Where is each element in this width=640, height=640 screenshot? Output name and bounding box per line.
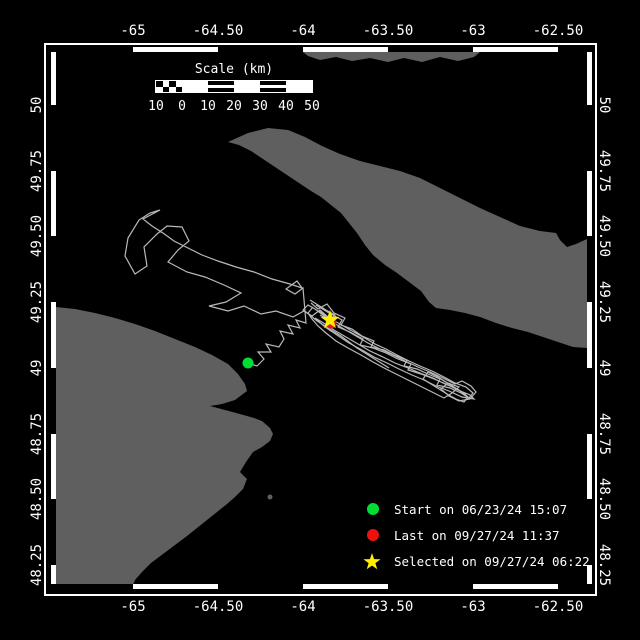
y-axis-tick-label-right: 48.50 [596, 478, 612, 520]
x-axis-tick-label-top: -63.50 [363, 23, 414, 39]
star-icon [358, 550, 384, 572]
land-north-shore [303, 52, 480, 62]
legend-marker-star [358, 550, 384, 572]
scale-bar-section [286, 81, 312, 92]
scale-bar-label: 30 [252, 99, 268, 114]
legend: Start on 06/23/24 15:07Last on 09/27/24 … [358, 496, 590, 574]
legend-label: Selected on 09/27/24 06:22 [384, 554, 590, 569]
x-axis-tick-label-bottom: -63.50 [363, 599, 414, 615]
y-axis-tick-label-left: 48.50 [29, 478, 45, 520]
x-axis-tick-label-top: -62.50 [533, 23, 584, 39]
y-axis-tick-label-left: 49.50 [29, 215, 45, 257]
y-axis-tick-label-right: 48.75 [596, 413, 612, 455]
legend-marker-circle [358, 524, 384, 546]
legend-label: Start on 06/23/24 15:07 [384, 502, 567, 517]
land-anticosti-island [228, 128, 587, 348]
y-axis-tick-label-right: 49 [596, 360, 612, 377]
legend-dot [367, 503, 379, 515]
y-axis-tick-label-left: 50 [29, 97, 45, 114]
x-axis-tick-label-top: -64.50 [193, 23, 244, 39]
x-axis-tick-label-bottom: -64 [290, 599, 315, 615]
scale-bar-section [234, 81, 260, 92]
start-marker[interactable] [243, 358, 254, 369]
y-axis-tick-label-right: 48.25 [596, 544, 612, 586]
y-axis-tick-label-right: 49.75 [596, 150, 612, 192]
legend-item: Last on 09/27/24 11:37 [358, 522, 590, 548]
scale-bar-label: 50 [304, 99, 320, 114]
x-axis-tick-label-bottom: -62.50 [533, 599, 584, 615]
scale-bar-section [260, 81, 286, 92]
tracking-map-view: -65-65-64.50-64.50-64-64-63.50-63.50-63-… [0, 0, 640, 640]
x-axis-tick-label-top: -63 [460, 23, 485, 39]
scale-bar-label: 10 [200, 99, 216, 114]
dot-icon [358, 524, 384, 546]
y-axis-tick-label-right: 50 [596, 97, 612, 114]
dot-icon [358, 498, 384, 520]
x-axis-tick-label-bottom: -65 [120, 599, 145, 615]
y-axis-tick-label-left: 49 [29, 360, 45, 377]
legend-item: Start on 06/23/24 15:07 [358, 496, 590, 522]
legend-label: Last on 09/27/24 11:37 [384, 528, 560, 543]
scale-bar-section [156, 81, 182, 92]
scale-bar-label: 40 [278, 99, 294, 114]
legend-marker-circle [358, 498, 384, 520]
scale-bar-section [182, 81, 208, 92]
scale-bar-label: 0 [178, 99, 186, 114]
y-axis-tick-label-left: 48.25 [29, 544, 45, 586]
x-axis-tick-label-top: -65 [120, 23, 145, 39]
legend-dot [367, 529, 379, 541]
legend-star [363, 553, 380, 569]
y-axis-tick-label-right: 49.50 [596, 215, 612, 257]
y-axis-tick-label-right: 49.25 [596, 281, 612, 323]
land-gaspe-peninsula [56, 307, 273, 587]
x-axis-tick-label-bottom: -63 [460, 599, 485, 615]
scale-bar: Scale (km) 1001020304050 [155, 62, 313, 115]
scale-bar-section [208, 81, 234, 92]
y-axis-tick-label-left: 48.75 [29, 413, 45, 455]
legend-item: Selected on 09/27/24 06:22 [358, 548, 590, 574]
y-axis-tick-label-left: 49.25 [29, 281, 45, 323]
scale-bar-label: 20 [226, 99, 242, 114]
scale-bar-labels: 1001020304050 [155, 99, 313, 115]
scale-bar-title: Scale (km) [155, 62, 313, 77]
scale-bar-label: 10 [148, 99, 164, 114]
bonaventure-island [268, 495, 273, 500]
x-axis-tick-label-bottom: -64.50 [193, 599, 244, 615]
x-axis-tick-label-top: -64 [290, 23, 315, 39]
y-axis-tick-label-left: 49.75 [29, 150, 45, 192]
scale-bar-graphic [155, 80, 313, 93]
